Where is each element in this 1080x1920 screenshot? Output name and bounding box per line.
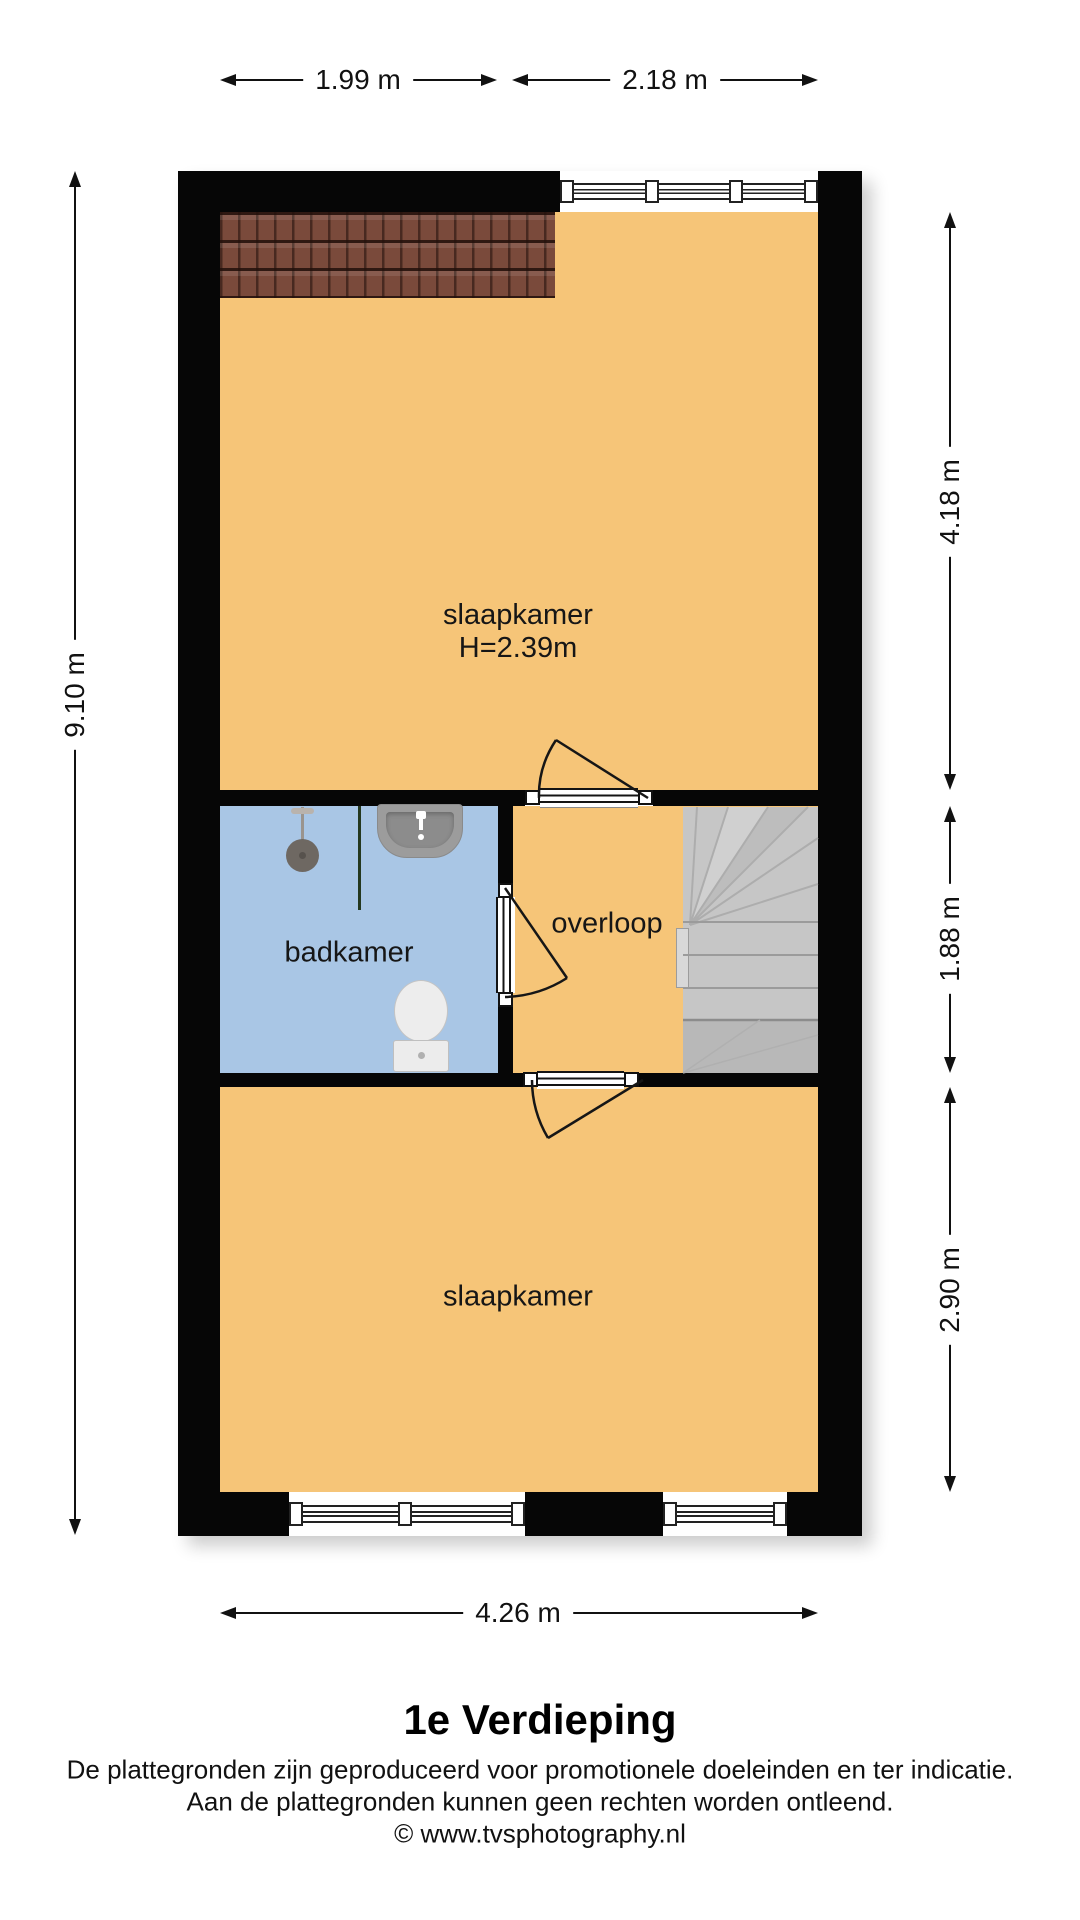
wall-mid-lower-left [220,1073,523,1087]
page-title: 1e Verdieping [403,1696,676,1744]
window-post [645,180,659,203]
window-bottom-left [289,1492,525,1536]
window-post [804,180,818,203]
label-landing: overloop [551,908,662,941]
door-hinge [523,1072,538,1087]
dim-top-left: 1.99 m [303,64,413,96]
wall-left [178,171,220,1536]
window-post [729,180,743,203]
toilet-button [418,1052,425,1059]
stair-newel [676,928,689,988]
wall-mid-lower-right [638,1073,818,1087]
door-sill-bedroom-top [540,788,638,808]
door-sill-bathroom [496,897,515,993]
window-glass [560,183,818,200]
dim-left: 9.10 m [59,640,91,750]
label-bedroom-top-name: slaapkamer [443,599,593,632]
staircase [683,807,818,1073]
window-post [663,1502,677,1526]
sink-faucet-head [416,811,426,819]
roof-slope-hatch [220,212,555,298]
door-hinge [525,790,540,805]
window-post [773,1502,787,1526]
door-hinge [638,790,653,805]
toilet-bowl [394,980,448,1042]
door-hinge [498,883,513,898]
window-bottom-right [663,1492,787,1536]
dim-top-right: 2.18 m [610,64,720,96]
dim-right-bottom: 2.90 m [934,1235,966,1345]
shower-drain [299,852,306,859]
wall-bathroom-bottom [498,1007,513,1073]
door-hinge [624,1072,639,1087]
dim-right-middle: 1.88 m [934,884,966,994]
label-bathroom: badkamer [285,937,414,970]
label-bedroom-top: slaapkamer H=2.39m [443,599,593,665]
window-glass [663,1505,787,1523]
disclaimer-line-1: De plattegronden zijn geproduceerd voor … [67,1755,1014,1786]
dim-right-top: 4.18 m [934,447,966,557]
label-bedroom-bottom: slaapkamer [443,1281,593,1314]
window-post [511,1502,525,1526]
wall-right [818,171,862,1536]
window-post [289,1502,303,1526]
window-top [560,171,818,212]
sink-faucet-dot [418,834,424,840]
floor-plan-page: { "plan": { "dimensions": { "top_left": … [0,0,1080,1920]
room-bedroom-top-floor [220,212,818,790]
shower-screen [358,806,361,910]
shower-bar [291,808,314,814]
dim-bottom: 4.26 m [463,1597,573,1629]
wall-mid-upper-right [653,790,818,806]
window-post [398,1502,412,1526]
door-hinge [498,992,513,1007]
wall-bathroom-top [498,806,513,883]
door-sill-bedroom-bottom [537,1071,624,1089]
label-bedroom-top-height: H=2.39m [443,632,593,665]
wall-top [178,171,562,212]
copyright: © www.tvsphotography.nl [394,1819,686,1850]
window-post [560,180,574,203]
wall-mid-upper-left [220,790,525,806]
disclaimer-line-2: Aan de plattegronden kunnen geen rechten… [187,1787,894,1818]
